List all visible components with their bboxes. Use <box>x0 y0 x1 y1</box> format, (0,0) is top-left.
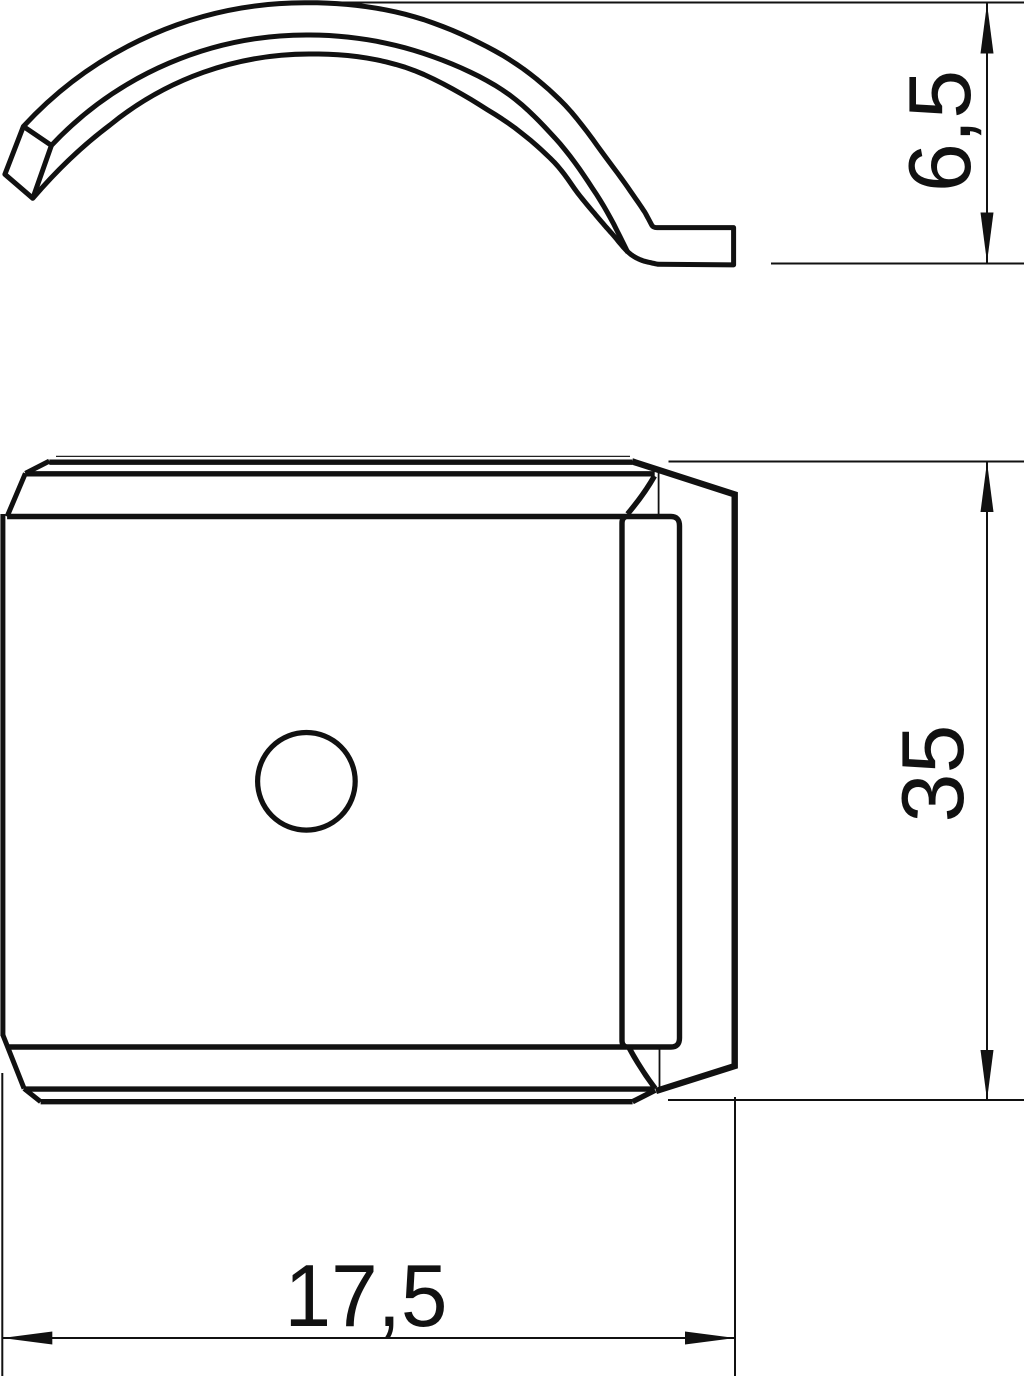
svg-text:6,5: 6,5 <box>890 70 989 192</box>
svg-text:35: 35 <box>883 725 982 823</box>
svg-text:17,5: 17,5 <box>285 1246 448 1345</box>
